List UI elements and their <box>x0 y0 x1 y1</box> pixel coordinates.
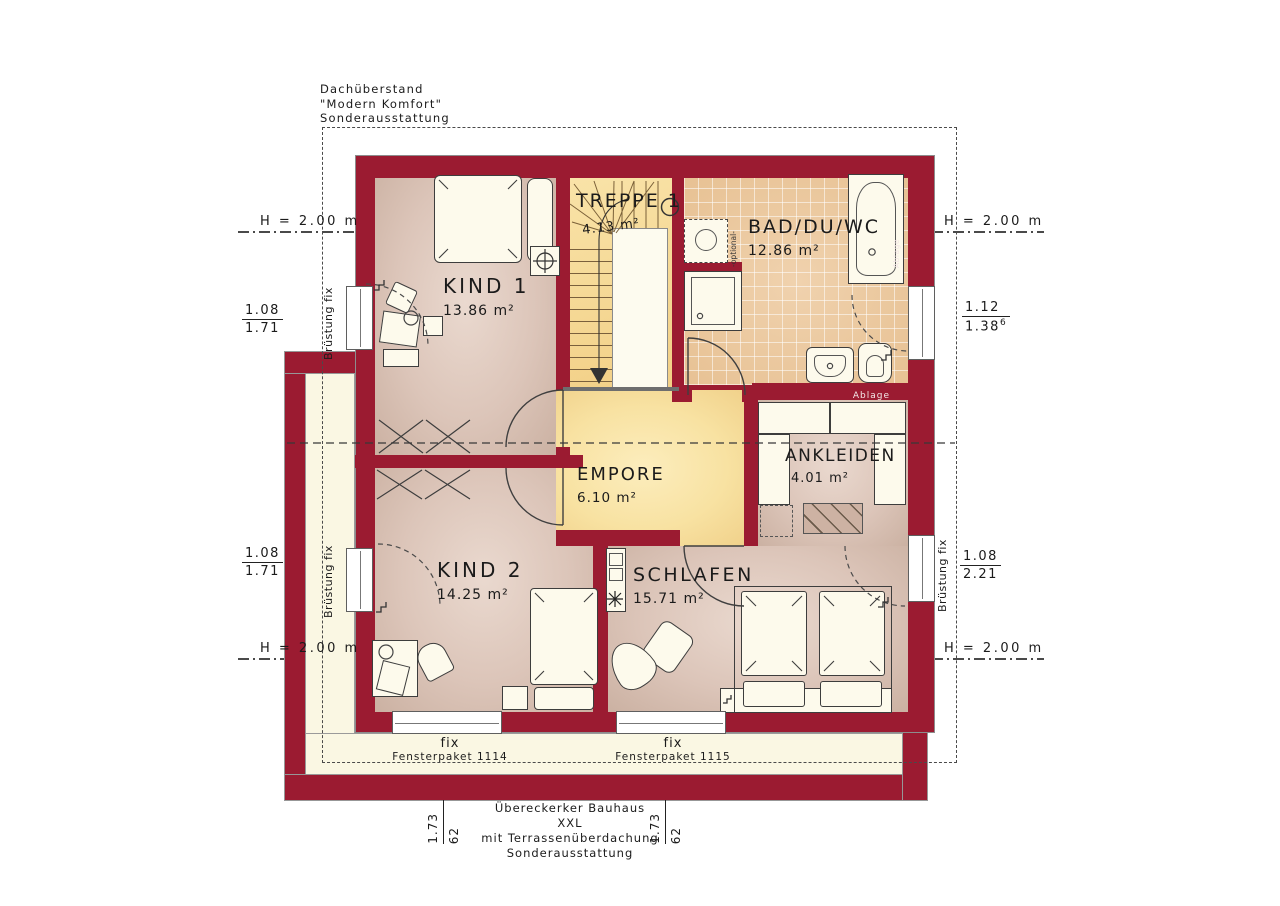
fensterpaket-label-1: fix Fensterpaket 1114 <box>390 736 510 763</box>
footer-note: Übereckerker Bauhaus XXL mit Terrassenüb… <box>480 801 660 861</box>
room-area: 15.71 m² <box>633 591 754 607</box>
fix-label: fix <box>613 736 733 751</box>
room-name: TREPPE 1 <box>576 190 682 212</box>
footer-note-line3: Sonderausstattung <box>480 846 660 861</box>
sill-dim-num: 1.08 <box>242 546 283 563</box>
roof-note-line2: "Modern Komfort" <box>320 97 450 112</box>
room-name: KIND 2 <box>437 558 523 582</box>
sill-dim-num: 1.08 <box>960 549 1001 566</box>
fensterpaket-label-2: fix Fensterpaket 1115 <box>613 736 733 763</box>
height-marker-bottom-right: H = 2.00 m <box>944 641 1044 656</box>
fensterpaket-name: Fensterpaket 1114 <box>390 751 510 763</box>
roof-note-line1: Dachüberstand <box>320 82 450 97</box>
height-marker-bottom-left: H = 2.00 m <box>260 641 360 656</box>
optional-label: -optional- <box>729 217 738 267</box>
label-bad: BAD/DU/WC 12.86 m² <box>748 216 880 259</box>
fix-label: fix <box>390 736 510 751</box>
fensterpaket-name: Fensterpaket 1115 <box>613 751 733 763</box>
room-area: 13.86 m² <box>443 303 529 319</box>
label-kind1: KIND 1 13.86 m² <box>443 274 529 319</box>
roof-note-line3: Sonderausstattung <box>320 111 450 126</box>
room-name: SCHLAFEN <box>633 564 754 586</box>
floorplan-canvas: { "plan": { "roof_note": {"line1": "Dach… <box>0 0 1280 906</box>
sill-dim-right-bottom: 1.08 2.21 <box>960 549 1001 582</box>
roof-note: Dachüberstand "Modern Komfort" Sonderaus… <box>320 82 450 126</box>
label-kind2: KIND 2 14.25 m² <box>437 558 523 603</box>
sill-dim-den: 1.386 <box>962 317 1010 334</box>
sill-dim-num: 1.12 <box>962 300 1010 317</box>
label-treppe: TREPPE 1 4.13 m² <box>576 190 682 232</box>
room-name: EMPORE <box>577 464 665 485</box>
label-empore: EMPORE 6.10 m² <box>577 464 665 506</box>
sill-dim-right-top: 1.12 1.386 <box>962 300 1010 334</box>
bruestung-label-left-top: Brüstung fix <box>322 280 335 360</box>
room-name: ANKLEIDEN <box>785 446 896 466</box>
room-area: 4.01 m² <box>791 471 896 486</box>
sill-dim-left-top: 1.08 1.71 <box>242 303 283 336</box>
ablage-label-bathtub: Ablage <box>892 214 901 268</box>
footer-note-line2: mit Terrassenüberdachung <box>480 831 660 846</box>
bruestung-label-right-bottom: Brüstung fix <box>936 528 949 612</box>
height-marker-top-left: H = 2.00 m <box>260 214 360 229</box>
sill-dim-den: 2.21 <box>960 566 1001 582</box>
footer-note-line1: Übereckerker Bauhaus XXL <box>480 801 660 831</box>
sill-dim-num: 1.08 <box>242 303 283 320</box>
label-schlafen: SCHLAFEN 15.71 m² <box>633 564 754 607</box>
room-area: 6.10 m² <box>577 490 665 506</box>
bruestung-label-left-bottom: Brüstung fix <box>322 538 335 618</box>
sill-dim-den: 1.71 <box>242 320 283 336</box>
height-marker-top-right: H = 2.00 m <box>944 214 1044 229</box>
label-ankleiden: ANKLEIDEN 4.01 m² <box>785 446 896 486</box>
room-area: 14.25 m² <box>437 587 523 603</box>
room-name: KIND 1 <box>443 274 529 298</box>
room-area: 12.86 m² <box>748 243 880 259</box>
sill-dim-den: 1.71 <box>242 563 283 579</box>
sill-dim-left-bottom: 1.08 1.71 <box>242 546 283 579</box>
bottom-dim-1: 1.73 62 <box>426 798 461 844</box>
room-name: BAD/DU/WC <box>748 216 880 238</box>
